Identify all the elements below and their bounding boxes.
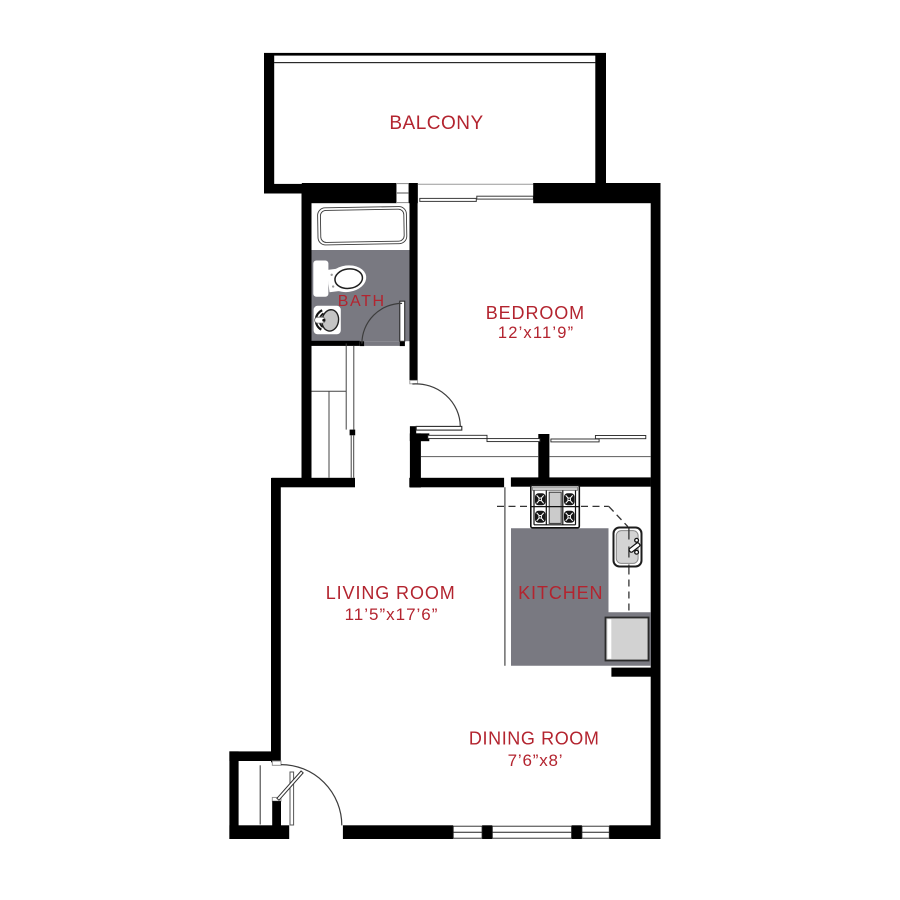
svg-text:BATH: BATH	[338, 293, 386, 310]
svg-text:LIVING ROOM: LIVING ROOM	[326, 583, 456, 603]
svg-text:11’5”x17’6”: 11’5”x17’6”	[345, 605, 439, 624]
svg-text:BALCONY: BALCONY	[389, 113, 483, 134]
svg-text:12’x11’9”: 12’x11’9”	[498, 324, 575, 342]
svg-text:7’6”x8’: 7’6”x8’	[508, 751, 564, 770]
svg-text:BEDROOM: BEDROOM	[486, 303, 585, 323]
svg-text:DINING ROOM: DINING ROOM	[469, 729, 600, 749]
svg-text:KITCHEN: KITCHEN	[518, 583, 603, 603]
